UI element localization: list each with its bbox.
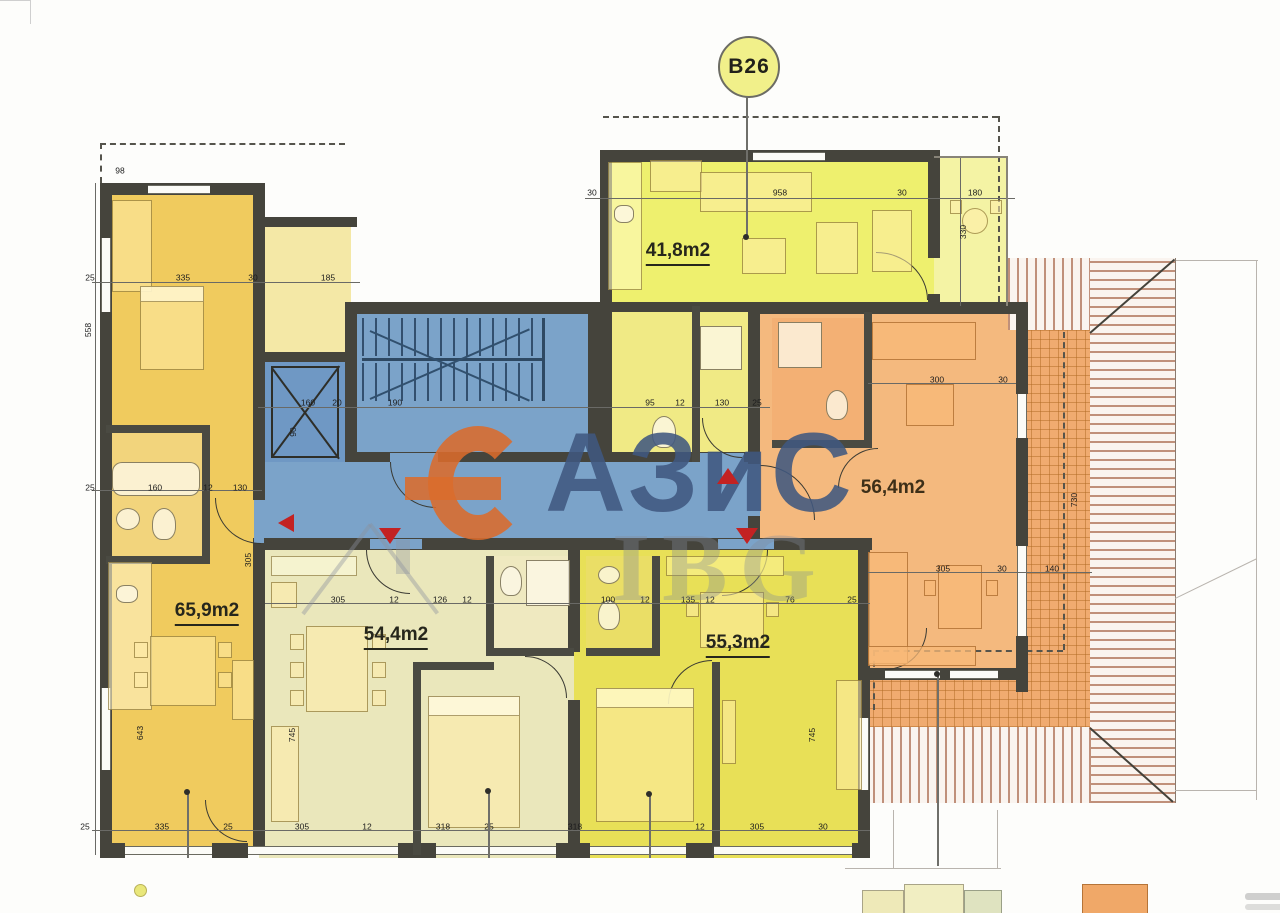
area-label-41: 41,8m2 xyxy=(646,240,710,266)
screen-artifact xyxy=(0,0,31,1)
legend-building-icon xyxy=(964,890,1002,913)
dimension-label: 160 xyxy=(301,398,315,407)
balcony-edge xyxy=(934,156,1008,158)
leader-line xyxy=(488,792,490,858)
dimension-label: 25 xyxy=(752,398,761,407)
dimension-label: 12 xyxy=(362,822,371,831)
area-label-65: 65,9m2 xyxy=(175,600,239,626)
floor-plan: 3095830180982533530185160201909512130252… xyxy=(0,0,1280,913)
entrance-marker xyxy=(379,528,401,544)
leader-dot xyxy=(743,234,749,240)
dimension-label: 25 xyxy=(80,822,89,831)
leader-dot xyxy=(646,791,652,797)
dimension-label: 130 xyxy=(233,483,247,492)
legend-caption-placeholder xyxy=(1245,904,1280,910)
area-label-54: 54,4m2 xyxy=(364,624,428,650)
dimension-label: 305 xyxy=(750,822,764,831)
dimension-label: 98 xyxy=(115,166,124,175)
legend-caption-placeholder xyxy=(1245,893,1280,900)
dimension-label: 12 xyxy=(675,398,684,407)
badge-leader-line xyxy=(746,96,748,236)
dimension-label: 12 xyxy=(389,595,398,604)
watermark-house-icon xyxy=(396,540,410,574)
dimension-label: 126 xyxy=(433,595,447,604)
dimension-label: 95 xyxy=(645,398,654,407)
legend-building-icon-orange xyxy=(1082,884,1148,913)
dimension-label: 335 xyxy=(176,273,190,282)
area-label-55: 55,3m2 xyxy=(706,632,770,658)
dimension-label: 20 xyxy=(332,398,341,407)
dimension-label: 160 xyxy=(148,483,162,492)
dimension-label: 558 xyxy=(84,323,93,337)
entrance-marker xyxy=(717,468,739,484)
leader-line xyxy=(187,793,189,858)
dimension-label: 958 xyxy=(773,188,787,197)
dimension-label: 305 xyxy=(936,564,950,573)
leader-dot xyxy=(485,788,491,794)
dimension-label: 745 xyxy=(288,728,297,742)
entrance-marker xyxy=(736,528,758,544)
dimension-label: 335 xyxy=(155,822,169,831)
dimension-label: 140 xyxy=(1045,564,1059,573)
leader-line xyxy=(937,676,939,866)
dimension-label: 305 xyxy=(331,595,345,604)
dimension-label: 305 xyxy=(295,822,309,831)
leader-dot xyxy=(934,671,940,677)
dimension-label: 745 xyxy=(808,728,817,742)
leader-dot xyxy=(184,789,190,795)
entrance-marker xyxy=(278,514,294,532)
legend-building-icon xyxy=(904,884,964,913)
dimension-label: 300 xyxy=(930,375,944,384)
dimension-label: 25 xyxy=(223,822,232,831)
dimension-label: 25 xyxy=(85,273,94,282)
dimension-label: 25 xyxy=(85,483,94,492)
dimension-label: 30 xyxy=(897,188,906,197)
dimension-label: 180 xyxy=(968,188,982,197)
dimension-label: 30 xyxy=(818,822,827,831)
dimension-label: 30 xyxy=(587,188,596,197)
dimension-label: 318 xyxy=(568,822,582,831)
watermark-logo-bar xyxy=(405,477,501,500)
balcony-edge xyxy=(1006,156,1008,306)
dimension-label: 12 xyxy=(203,483,212,492)
dimension-label: 25 xyxy=(847,595,856,604)
area-label-56: 56,4m2 xyxy=(861,477,925,499)
dimension-label: 730 xyxy=(1070,493,1079,507)
leader-line xyxy=(649,795,651,858)
dimension-label: 130 xyxy=(715,398,729,407)
dimension-label: 30 xyxy=(998,375,1007,384)
dimension-label: 190 xyxy=(388,398,402,407)
dimension-label: 185 xyxy=(321,273,335,282)
legend-building-icon xyxy=(862,890,904,913)
unit-badge-label: B26 xyxy=(728,55,770,79)
dimension-label: 30 xyxy=(997,564,1006,573)
dimension-label: 90 xyxy=(289,427,298,436)
dimension-label: 30 xyxy=(248,273,257,282)
dimension-label: 12 xyxy=(695,822,704,831)
dimension-label: 12 xyxy=(462,595,471,604)
watermark-secondary-text: IBG xyxy=(612,512,828,624)
dimension-label: 643 xyxy=(136,726,145,740)
screen-artifact xyxy=(30,0,31,24)
legend-marker-icon xyxy=(134,884,147,897)
dimension-label: 330 xyxy=(959,225,968,239)
dimension-label: 318 xyxy=(436,822,450,831)
dimension-label: 305 xyxy=(244,553,253,567)
unit-badge: B26 xyxy=(718,36,780,98)
